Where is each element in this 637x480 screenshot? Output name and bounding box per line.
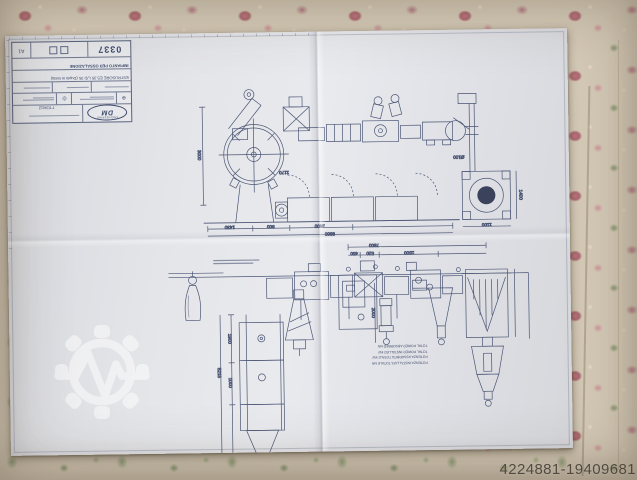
elevation-view: 3000: [196, 86, 524, 239]
illegible-text-bar: [80, 99, 114, 101]
pipe-diameter-label: Ø100: [453, 155, 465, 160]
illegible-text-bar: [29, 115, 79, 117]
approval-cell: [72, 92, 117, 103]
title-block: ENGINEERING DM TTOM12 ⊕: [11, 40, 132, 124]
illegible-text-bar: [90, 96, 114, 98]
dimension-label: 1000: [228, 378, 233, 389]
watermark-gear-pulse-icon: [50, 320, 154, 424]
drawing-code: TTOM12: [39, 105, 57, 110]
approval-cell-2: [13, 93, 58, 104]
illegible-text-bar: [33, 97, 55, 98]
pulse-line: [58, 353, 146, 396]
illegible-text-bar: [67, 86, 90, 88]
dimension-label: 1500: [404, 250, 415, 255]
dimension-label: 2000: [371, 308, 376, 319]
drawing-number: 0337: [97, 44, 121, 54]
sheet-format: A1: [18, 47, 24, 53]
copyright-symbol-icon: ◎: [62, 95, 66, 101]
plan-view: 7800 450 520 1500: [168, 241, 531, 456]
dimension-label: 3000: [197, 150, 202, 161]
power-note-line: POTENZA INSTALLATA TOTALE kW: [354, 359, 428, 366]
dimension-label: 1170: [279, 170, 289, 175]
stamp-boxes-cell: [31, 42, 88, 58]
logo-cell: ENGINEERING DM: [83, 104, 131, 122]
illegible-text-bar: [23, 87, 49, 89]
photo-scene: 3000: [0, 0, 637, 480]
logo-brand-text: ENGINEERING: [96, 115, 118, 118]
machine-subtitle: ESTRUSORE ES.35 L/D 35 (Duplo in testa): [51, 69, 131, 82]
dimension-label: 7800: [368, 243, 379, 248]
drawing-number-cell: 0337: [88, 41, 130, 57]
dm-engineering-logo: ENGINEERING DM: [87, 105, 127, 122]
tablecloth-seam-2: [618, 40, 619, 470]
projection-symbol-icon: ⊕: [122, 95, 126, 101]
dimension-label: 800: [266, 224, 274, 229]
illegible-text-bar: [105, 86, 129, 88]
dimension-label: 5215: [217, 368, 222, 379]
power-notes: POTENZA INSTALLATA TOTALE kW POTENZA ASS…: [353, 342, 427, 365]
dimension-label: 1430: [224, 225, 235, 230]
code-cell: TTOM12: [13, 105, 83, 123]
power-note-line: TOTAL POWER INSTALLED kW: [353, 348, 427, 355]
title-block-content: ENGINEERING DM TTOM12 ⊕: [12, 41, 131, 123]
dimension-label: 520: [366, 251, 374, 256]
stamp-box: [61, 46, 69, 54]
photo-id: 4224881-19409681: [499, 461, 636, 478]
copyright-symbol-cell: ◎: [57, 93, 72, 104]
drawing-title: IMPIANTO PER OSSALAZIONE: [70, 58, 131, 69]
dimension-label: 1900: [227, 334, 232, 345]
format-cell: A1: [12, 43, 31, 59]
stamp-box: [50, 46, 58, 54]
revision-cell: [92, 82, 131, 92]
revision-cell-2: [52, 82, 92, 92]
dimension-label: 1400: [518, 190, 523, 201]
projection-symbol-cell: ⊕: [117, 92, 131, 103]
logo-initials: DM: [101, 108, 113, 115]
illegible-text-bar: [23, 99, 55, 101]
dimension-label: 450: [350, 251, 358, 256]
revision-cell-3: [13, 83, 53, 93]
